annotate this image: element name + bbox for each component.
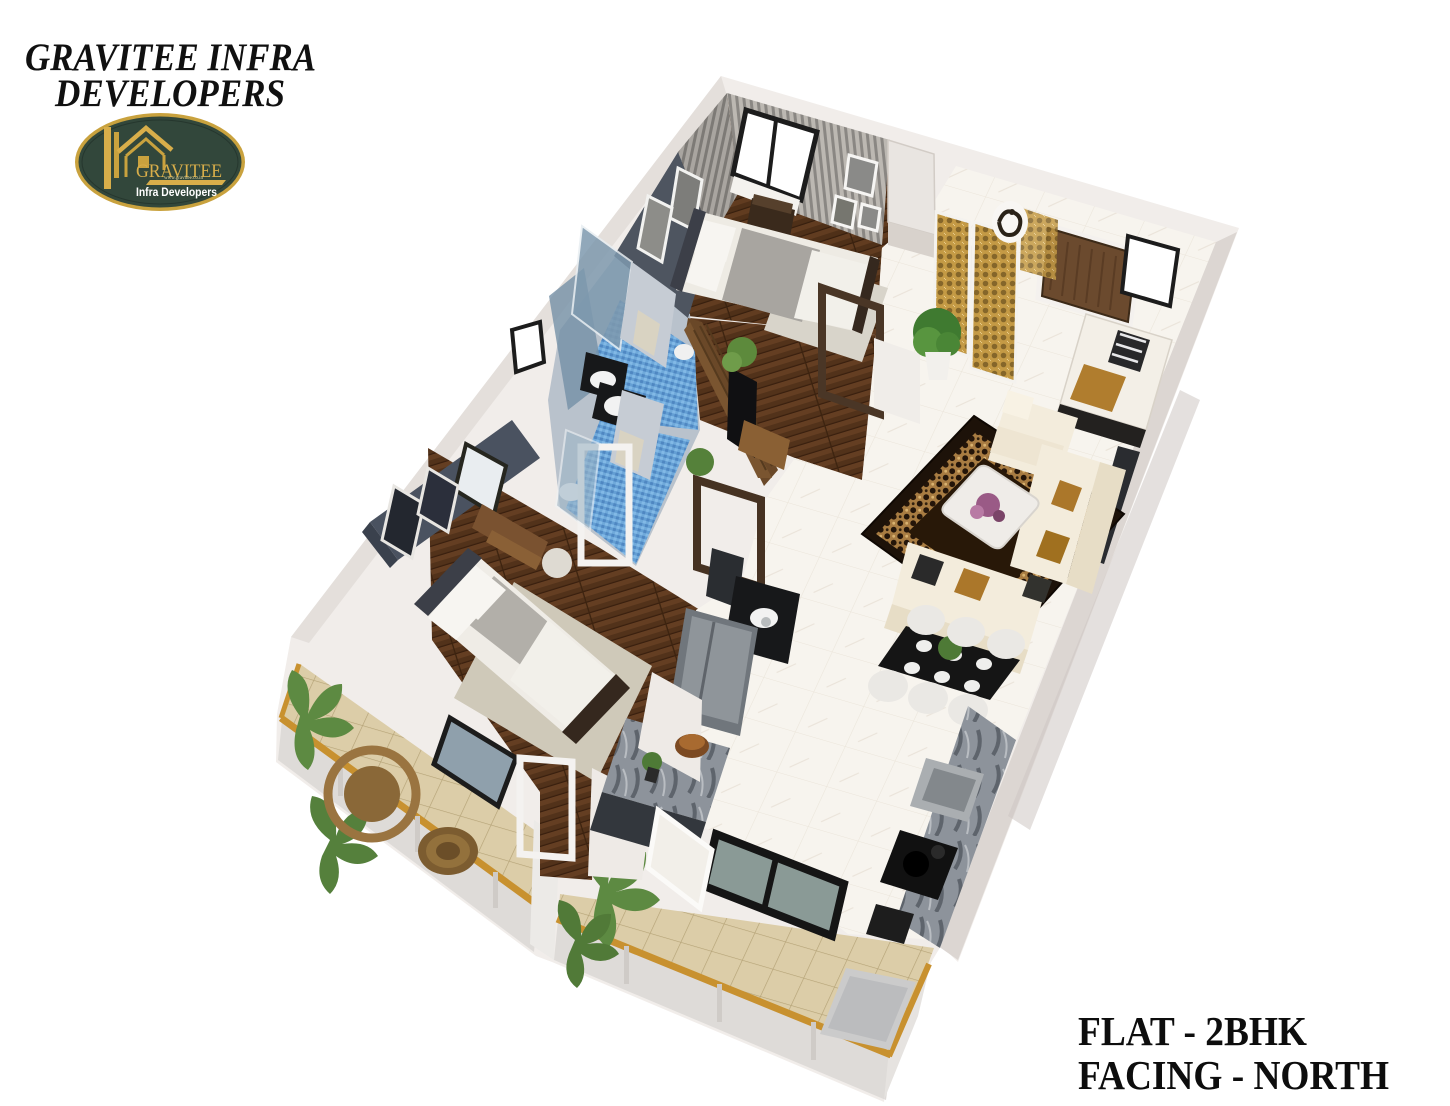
svg-text:Infra Developers: Infra Developers bbox=[136, 187, 217, 199]
svg-text:FLAT - 2BHK: FLAT - 2BHK bbox=[1078, 1008, 1307, 1054]
svg-text:FACING - NORTH: FACING - NORTH bbox=[1078, 1052, 1389, 1098]
svg-text:DEVELOPERS: DEVELOPERS bbox=[54, 72, 285, 115]
svg-text:www.gravitee.co.in: www.gravitee.co.in bbox=[164, 176, 203, 181]
